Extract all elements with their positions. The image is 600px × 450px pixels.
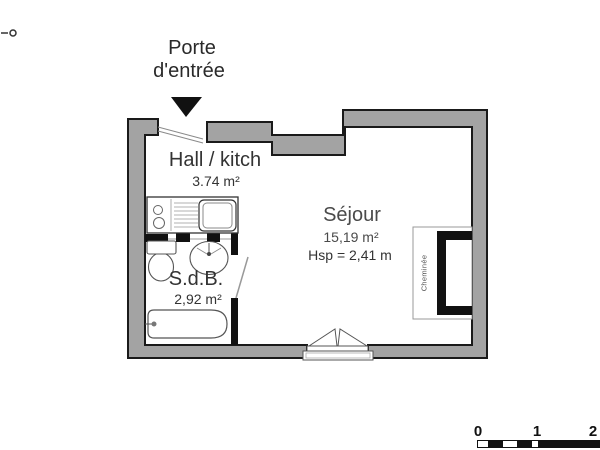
scale-tick-1: 1 xyxy=(533,423,541,440)
room-label-sdb: S.d.B. xyxy=(169,268,223,290)
drainer-icon xyxy=(174,203,198,227)
corner-mark-icon xyxy=(1,30,16,36)
room-area-sejour: 15,19 m² xyxy=(323,230,378,245)
scale-tick-2: 2 xyxy=(589,423,597,440)
entrance-arrow-icon xyxy=(171,97,202,117)
room-height-sejour: Hsp = 2,41 m xyxy=(308,248,392,263)
room-area-hall-kitch: 3.74 m² xyxy=(192,174,239,189)
bathtub-icon xyxy=(145,310,227,338)
kitchen-sink-icon xyxy=(199,200,236,231)
fireplace-label: Cheminée xyxy=(420,255,429,292)
floor-plan-canvas: Porte d'entrée Hall / kitch 3.74 m² Séjo… xyxy=(0,0,600,450)
scale-tick-0: 0 xyxy=(474,423,482,440)
room-label-hall-kitch: Hall / kitch xyxy=(169,149,261,171)
scale-bar xyxy=(477,440,600,448)
entrance-label-line1: Porte xyxy=(168,37,216,59)
french-door-icon xyxy=(303,329,373,360)
bathroom-door-swing xyxy=(236,257,248,298)
entrance-label-line2: d'entrée xyxy=(153,60,225,82)
room-label-sejour: Séjour xyxy=(323,204,381,226)
floor-plan-drawing xyxy=(0,0,600,450)
room-area-sdb: 2,92 m² xyxy=(174,292,221,307)
entrance-door-swing xyxy=(158,127,203,143)
